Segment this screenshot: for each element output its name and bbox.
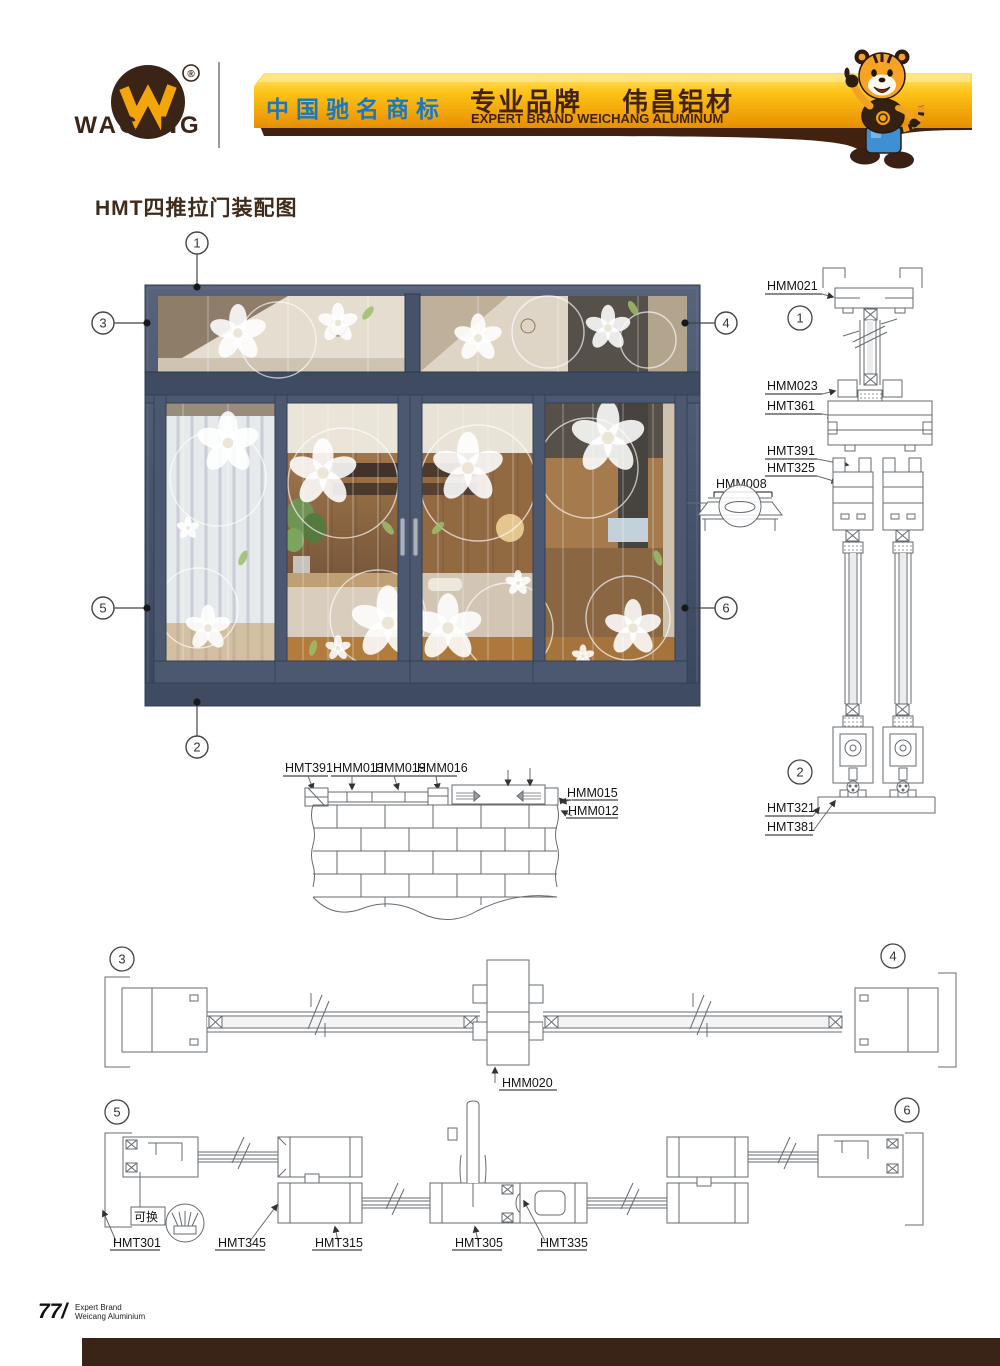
vsec-callout-1: 1 [796,311,803,326]
horizontal-section-top: 3 4 HMM020 [90,935,960,1093]
label-hmt321: HMT321 [767,801,815,815]
door-illustration: 1 2 3 4 5 6 HMM008 [88,228,808,763]
label-hmm020: HMM020 [502,1076,553,1090]
horizontal-section-bottom: 5 6 [90,1095,960,1265]
head-profile [823,268,922,385]
page-title: HMT四推拉门装配图 [95,192,298,222]
footer-bar [82,1338,1000,1366]
h34-callout-3: 3 [118,952,125,967]
vertical-section-diagram: HMM021 1 HMM023 HMT361 HMT391 HMT325 [755,256,1000,848]
replaceable-label: 可换 [134,1210,158,1224]
callout-3: 3 [99,316,106,331]
transom-mullion [405,294,420,374]
callout-1: 1 [193,236,200,251]
catalog-page: { "header": { "logo": { "name": "WACANG"… [0,0,1000,1366]
label-hmt381: HMT381 [767,820,815,834]
label-hmt301: HMT301 [113,1236,161,1250]
registered-mark: ® [187,69,195,80]
door-panel-columns [818,458,935,813]
callout-4: 4 [722,316,729,331]
label-hmt315: HMT315 [315,1236,363,1250]
label-hmt335: HMT335 [540,1236,588,1250]
transom-profile [828,374,932,451]
label-hmt361: HMT361 [767,399,815,413]
footer-line1: Expert Brand [75,1303,145,1312]
callout-6: 6 [722,601,729,616]
label-hmm016: HMM016 [417,761,468,775]
sill-detail-diagram: HMT391 HMM013 HMM019 HMM016 HMM015 HMM01… [280,755,620,925]
logo-wordmark: WACANG [58,112,218,140]
callout-5: 5 [99,601,106,616]
page-number: 77/ [38,1300,67,1324]
label-hmm023: HMM023 [767,379,818,393]
label-hmt305: HMT305 [455,1236,503,1250]
h56-drawing [105,1101,923,1227]
h56-callout-6: 6 [903,1103,910,1118]
footer-line2: Weicang Aluminium [75,1312,145,1321]
label-hmm012: HMM012 [568,804,619,818]
brick-wall [312,805,559,920]
vsec-callout-2: 2 [796,765,803,780]
transom-rail [145,372,700,395]
label-sill-hmt391: HMT391 [285,761,333,775]
label-hmm015: HMM015 [567,786,618,800]
header-divider [218,62,220,148]
label-hmm021: HMM021 [767,279,818,293]
tiger-mascot-icon [838,42,930,170]
callout-2: 2 [193,740,200,755]
label-hmt325: HMT325 [767,461,815,475]
label-hmt391: HMT391 [767,444,815,458]
banner-brand-en: EXPERT BRAND WEICHANG ALUMINUM [471,111,723,126]
h34-callout-4: 4 [889,949,896,964]
h34-drawing [105,960,956,1067]
label-hmt345: HMT345 [218,1236,266,1250]
banner-cn-badge: 中国驰名商标 [266,90,446,124]
footer-tagline: Expert Brand Weicang Aluminium [75,1303,145,1321]
replaceable-detail: 可换 [131,1172,204,1242]
h56-callout-5: 5 [113,1105,120,1120]
